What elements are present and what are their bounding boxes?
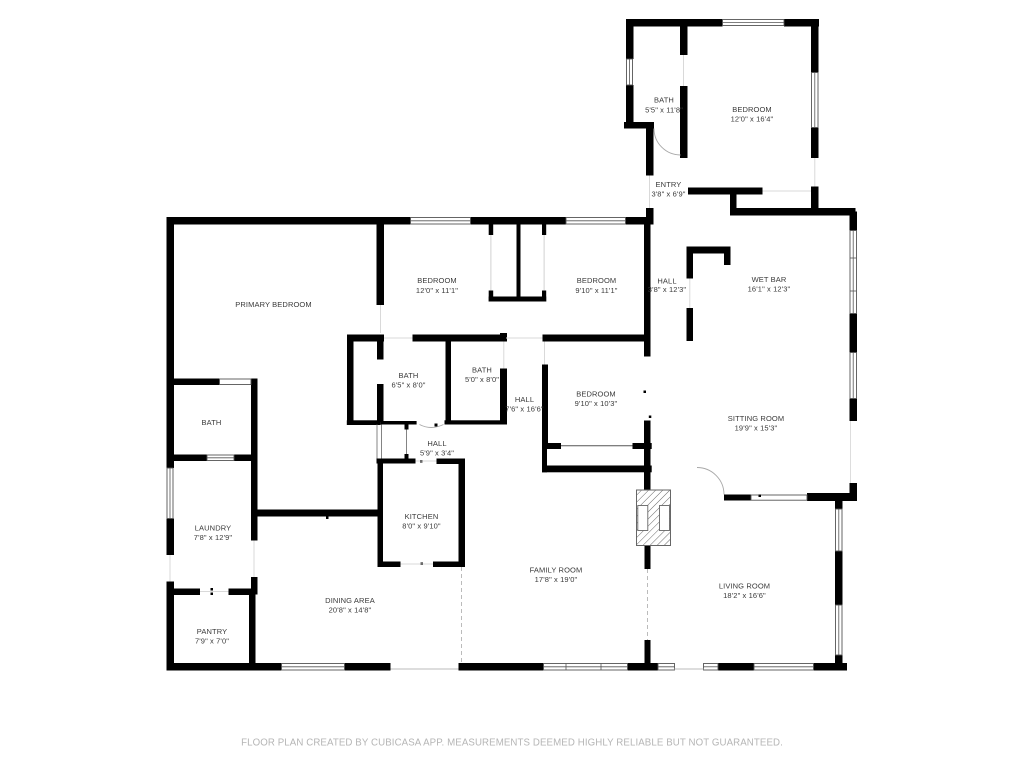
svg-text:12'0" x 11'1": 12'0" x 11'1"	[416, 286, 458, 295]
svg-text:BEDROOM: BEDROOM	[732, 105, 772, 114]
svg-text:7'6" x 16'6": 7'6" x 16'6"	[505, 405, 544, 414]
svg-text:BATH: BATH	[472, 366, 492, 375]
svg-text:9'10" x 11'1": 9'10" x 11'1"	[575, 286, 617, 295]
svg-text:3'8" x 6'9": 3'8" x 6'9"	[651, 189, 685, 198]
svg-text:HALL: HALL	[657, 276, 676, 285]
svg-text:PRIMARY BEDROOM: PRIMARY BEDROOM	[235, 300, 312, 309]
svg-text:KITCHEN: KITCHEN	[405, 512, 439, 521]
svg-text:BATH: BATH	[399, 371, 419, 380]
svg-text:7'8" x 12'9": 7'8" x 12'9"	[194, 533, 233, 542]
svg-text:SITTING ROOM: SITTING ROOM	[728, 414, 784, 423]
svg-text:3'8" x 12'3": 3'8" x 12'3"	[648, 285, 687, 294]
svg-text:5'5" x 11'8": 5'5" x 11'8"	[645, 105, 683, 114]
svg-text:BEDROOM: BEDROOM	[576, 389, 616, 398]
svg-text:17'8" x 19'0": 17'8" x 19'0"	[535, 575, 578, 584]
svg-text:BATH: BATH	[654, 96, 674, 105]
svg-text:WET BAR: WET BAR	[752, 275, 787, 284]
svg-text:20'8" x 14'8": 20'8" x 14'8"	[329, 606, 372, 615]
svg-text:5'9" x 3'4": 5'9" x 3'4"	[420, 449, 454, 458]
svg-text:FAMILY ROOM: FAMILY ROOM	[530, 565, 583, 574]
svg-text:19'9" x 15'3": 19'9" x 15'3"	[735, 424, 778, 433]
svg-text:12'0" x 16'4": 12'0" x 16'4"	[731, 115, 774, 124]
svg-text:DINING AREA: DINING AREA	[325, 596, 375, 605]
svg-text:BATH: BATH	[202, 418, 222, 427]
svg-text:FLOOR PLAN CREATED BY CUBICASA: FLOOR PLAN CREATED BY CUBICASA APP. MEAS…	[241, 738, 783, 749]
svg-text:LAUNDRY: LAUNDRY	[195, 523, 232, 532]
svg-text:7'9" x 7'0": 7'9" x 7'0"	[195, 637, 229, 646]
svg-text:18'2" x 16'6": 18'2" x 16'6"	[723, 591, 766, 600]
svg-text:HALL: HALL	[515, 395, 534, 404]
svg-text:PANTRY: PANTRY	[197, 627, 227, 636]
svg-text:LIVING ROOM: LIVING ROOM	[719, 582, 770, 591]
svg-text:16'1" x 12'3": 16'1" x 12'3"	[748, 285, 791, 294]
svg-text:9'10" x 10'3": 9'10" x 10'3"	[575, 399, 618, 408]
svg-text:ENTRY: ENTRY	[656, 180, 682, 189]
svg-text:6'5" x 8'0": 6'5" x 8'0"	[391, 381, 425, 390]
svg-text:5'0" x 8'0": 5'0" x 8'0"	[465, 375, 499, 384]
svg-text:BEDROOM: BEDROOM	[417, 276, 457, 285]
svg-text:BEDROOM: BEDROOM	[577, 276, 617, 285]
svg-text:HALL: HALL	[427, 439, 446, 448]
svg-text:8'0" x 9'10": 8'0" x 9'10"	[402, 522, 441, 531]
